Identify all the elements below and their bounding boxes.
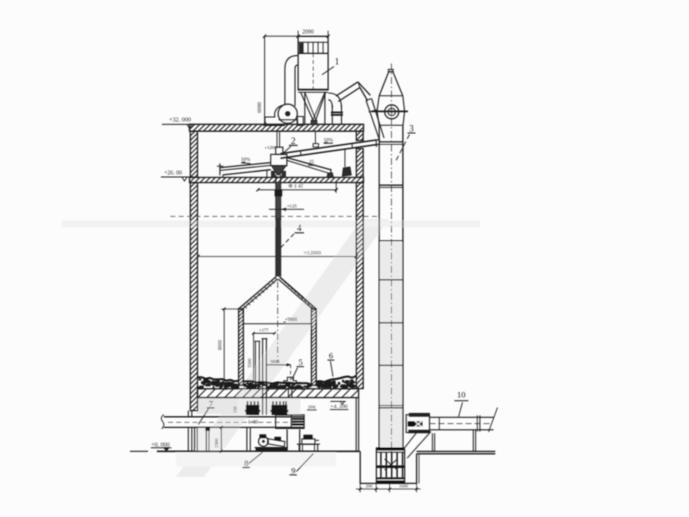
svg-text:8: 8	[244, 458, 248, 468]
svg-text:10: 10	[457, 389, 466, 399]
svg-text:6: 6	[329, 350, 333, 360]
svg-text:7: 7	[209, 398, 213, 408]
svg-text:5000: 5000	[270, 359, 280, 364]
svg-text:+26. 00: +26. 00	[164, 170, 182, 176]
svg-text:≈125: ≈125	[287, 203, 297, 208]
svg-text:+177: +177	[259, 327, 269, 332]
svg-text:6000: 6000	[219, 340, 224, 351]
svg-text:1: 1	[335, 57, 340, 67]
svg-text:1=90: 1=90	[248, 420, 259, 425]
svg-text:1600: 1600	[399, 483, 409, 488]
svg-text:150: 150	[232, 407, 237, 413]
svg-text:≈12000: ≈12000	[304, 251, 321, 257]
svg-text:+4. 200: +4. 200	[330, 404, 347, 410]
svg-text:6080: 6080	[257, 102, 263, 113]
svg-text:290: 290	[366, 483, 374, 488]
svg-text:+32. 000: +32. 000	[169, 117, 191, 124]
svg-text:10%: 10%	[241, 157, 251, 163]
svg-text:+1200: +1200	[265, 145, 277, 150]
svg-text:)50(: )50(	[308, 404, 316, 409]
svg-text:+9000: +9000	[285, 318, 298, 323]
svg-text:2090: 2090	[302, 30, 314, 36]
svg-text:5500: 5500	[247, 358, 252, 368]
svg-text:5: 5	[298, 357, 302, 367]
svg-text:25: 25	[309, 160, 315, 165]
svg-text:4: 4	[297, 223, 302, 233]
svg-text:9: 9	[291, 465, 295, 475]
svg-text:3: 3	[409, 124, 414, 134]
svg-text:2300: 2300	[214, 438, 219, 448]
svg-text:Φ 1 4）: Φ 1 4）	[288, 183, 306, 190]
